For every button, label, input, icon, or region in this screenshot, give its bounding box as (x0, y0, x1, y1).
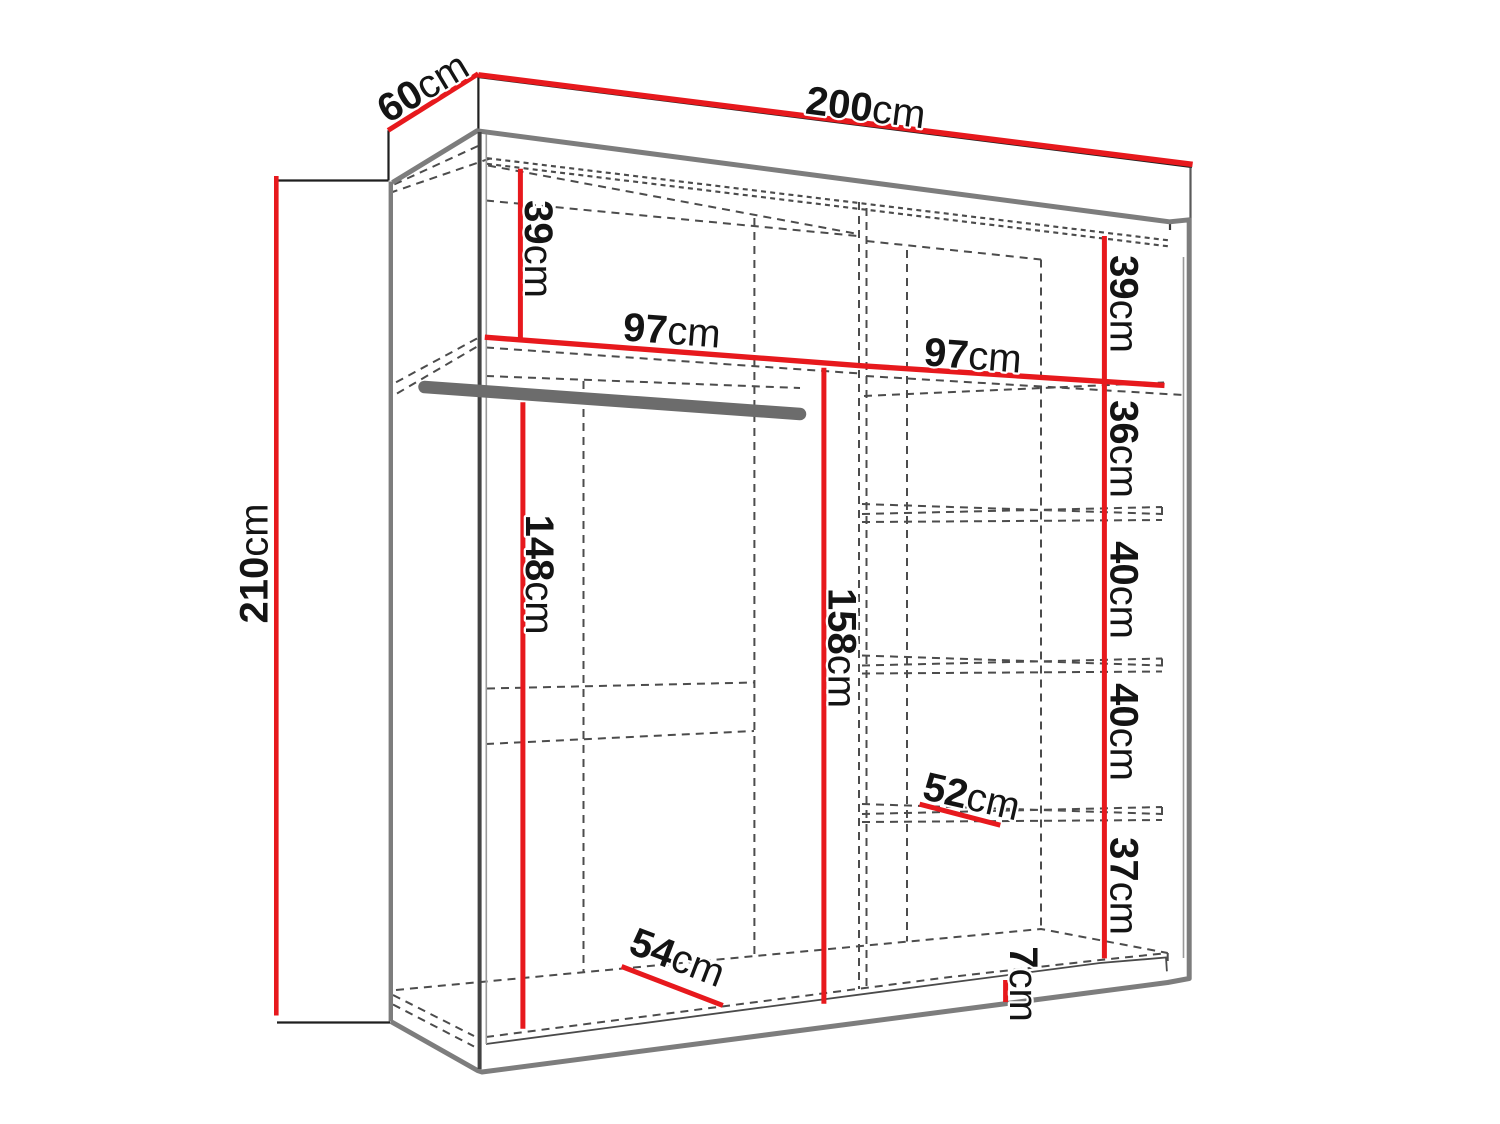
svg-text:37cm: 37cm (1102, 837, 1146, 935)
svg-text:97cm: 97cm (621, 305, 722, 356)
svg-text:39cm: 39cm (516, 200, 560, 298)
svg-text:40cm: 40cm (1102, 683, 1146, 781)
svg-text:210cm: 210cm (233, 503, 277, 623)
svg-text:7cm: 7cm (1001, 946, 1045, 1022)
svg-text:97cm: 97cm (922, 330, 1023, 382)
svg-text:158cm: 158cm (820, 588, 864, 708)
svg-text:148cm: 148cm (517, 515, 561, 635)
svg-text:36cm: 36cm (1102, 400, 1146, 498)
svg-text:40cm: 40cm (1102, 541, 1146, 639)
svg-text:39cm: 39cm (1102, 255, 1146, 353)
